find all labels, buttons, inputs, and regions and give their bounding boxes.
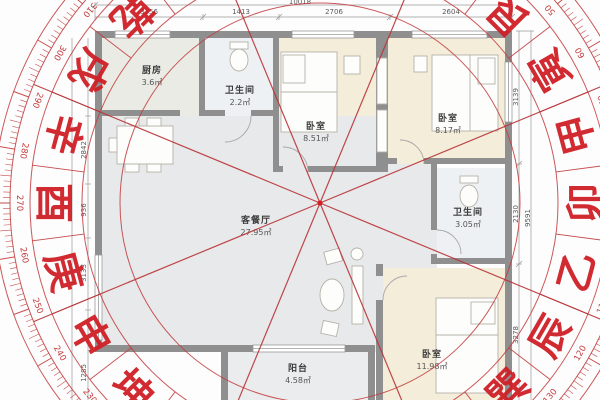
pillow-icon	[283, 55, 305, 83]
bath1-name: 卫生间	[225, 86, 255, 98]
bedroom2-name: 卧室	[435, 114, 461, 126]
dim-left-seg-2: 936	[80, 203, 88, 216]
bedroom2-area: 8.17㎡	[435, 126, 461, 136]
chair-icon	[147, 164, 161, 172]
dim-left-seg-3: 3133	[80, 264, 88, 282]
chair-icon	[125, 118, 139, 126]
room-label-bedroom1: 卧室 8.51㎡	[303, 122, 329, 144]
dim-top-total: 10018	[289, 0, 311, 6]
room-label-bedroom3: 卧室 11.98㎡	[417, 350, 448, 372]
nightstand-icon	[414, 56, 427, 72]
hall-floor	[375, 164, 437, 268]
dim-right-seg-1: 3139	[512, 88, 520, 106]
pillow-icon	[471, 302, 495, 324]
floorplan-drawing	[0, 0, 600, 400]
living-area: 27.95㎡	[241, 228, 272, 238]
window	[292, 31, 354, 38]
bath2-area: 3.05㎡	[453, 220, 483, 230]
plant-icon	[351, 248, 363, 260]
dim-top-seg-3: 2706	[325, 8, 343, 16]
living-name: 客餐厅	[241, 216, 272, 228]
bedroom1-area: 8.51㎡	[303, 134, 329, 144]
chair-icon	[125, 164, 139, 172]
chair-icon	[147, 118, 161, 126]
balcony-name: 阳台	[285, 364, 311, 376]
chair-icon	[321, 320, 339, 336]
bedroom3-name: 卧室	[417, 350, 448, 362]
dim-left-seg-4: 1285	[80, 364, 88, 382]
kitchen-name: 厨房	[142, 66, 163, 78]
room-label-living: 客餐厅 27.95㎡	[241, 216, 272, 238]
room-label-kitchen: 厨房 3.6㎡	[142, 66, 163, 88]
dim-top-seg-2: 1413	[232, 8, 250, 16]
room-label-bath1: 卫生间 2.2㎡	[225, 86, 255, 108]
room-label-bath2: 卫生间 3.05㎡	[453, 208, 483, 230]
pillow-icon	[478, 58, 495, 84]
dim-right-seg-3: 3278	[512, 326, 520, 344]
toilet-tank-icon	[460, 176, 478, 183]
floorplan-with-luopan-overlay: 厨房 3.6㎡ 卫生间 2.2㎡ 卧室 8.51㎡ 卧室 8.17㎡ 卫生间 3…	[0, 0, 600, 400]
room-label-bedroom2: 卧室 8.17㎡	[435, 114, 461, 136]
cabinet-icon	[352, 266, 363, 324]
bath1-area: 2.2㎡	[225, 98, 255, 108]
door-leaf-icon	[377, 58, 387, 104]
room-label-balcony: 阳台 4.58㎡	[285, 364, 311, 386]
toilet-icon	[460, 185, 478, 207]
dim-top-seg-4: 2604	[442, 8, 460, 16]
chair-icon	[109, 138, 117, 152]
window	[412, 31, 487, 38]
balcony-area: 4.58㎡	[285, 376, 311, 386]
window	[505, 62, 512, 122]
bedroom1-name: 卧室	[303, 122, 329, 134]
door-leaf-icon	[377, 110, 387, 152]
kitchen-area: 3.6㎡	[142, 78, 163, 88]
dim-right-seg-2: 2130	[512, 205, 520, 223]
window	[115, 31, 170, 38]
dining-table-icon	[117, 126, 173, 164]
bath2-name: 卫生间	[453, 208, 483, 220]
window	[95, 255, 102, 340]
toilet-icon	[230, 49, 248, 71]
toilet-tank-icon	[230, 42, 248, 49]
balcony-sliding-door	[253, 345, 345, 352]
dim-left-seg-1: 2842	[80, 141, 88, 159]
dim-top-seg-1: 3356	[140, 8, 158, 16]
dim-right-total: 9591	[524, 209, 532, 227]
nightstand-icon	[344, 56, 360, 74]
bedroom3-area: 11.98㎡	[417, 362, 448, 372]
tea-table-icon	[320, 279, 344, 311]
